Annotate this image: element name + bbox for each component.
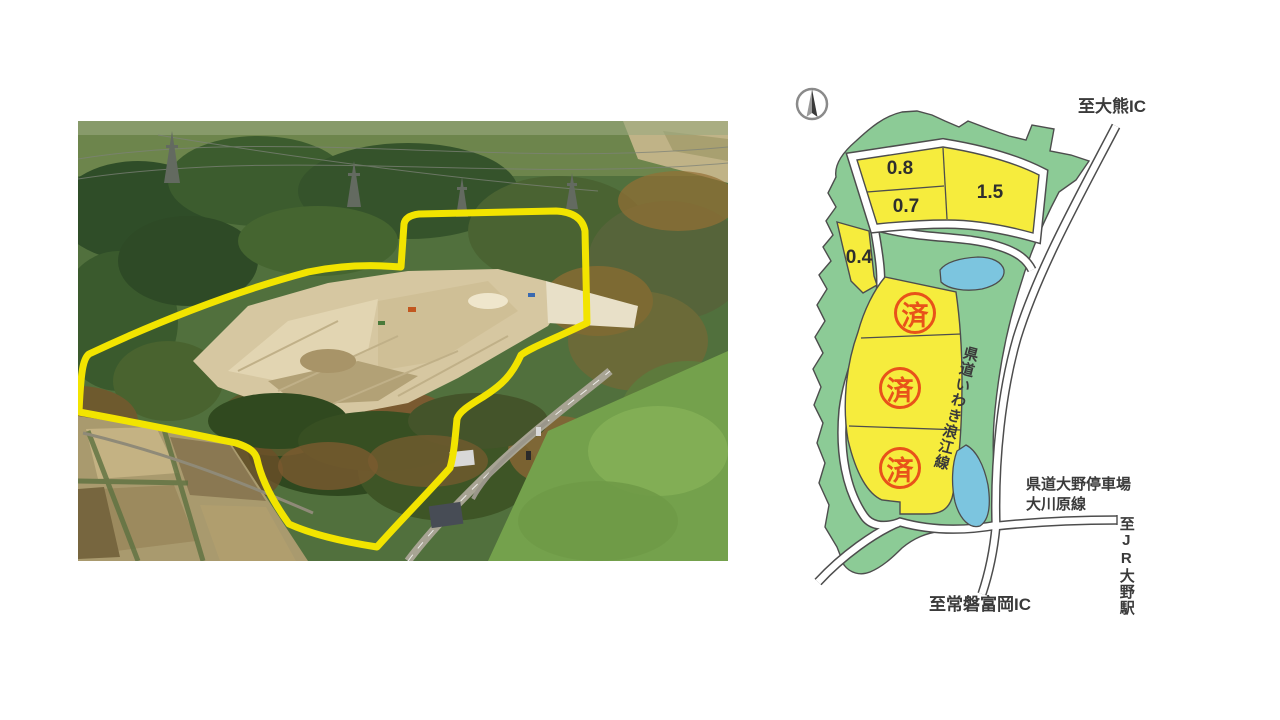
sold-mark-3: 済	[879, 447, 921, 489]
plot-label-08: 0.8	[874, 158, 926, 180]
sold-mark-2: 済	[879, 367, 921, 409]
label-to-tomioka-ic: 至常磐富岡IC	[910, 594, 1050, 615]
label-road-ono-line2: 大川原線	[1026, 496, 1086, 515]
haze	[78, 121, 728, 135]
site-map: 至大熊IC 県道いわき浪江線 県道大野停車場 大川原線 至JR大野駅 至常磐富岡…	[780, 70, 1180, 630]
plot-label-07: 0.7	[880, 196, 932, 218]
sold-mark-1: 済	[894, 292, 936, 334]
plot-label-04: 0.4	[833, 247, 885, 269]
label-road-ono-line1: 県道大野停車場	[1026, 476, 1131, 495]
north-indicator-icon	[797, 89, 827, 119]
page: 至大熊IC 県道いわき浪江線 県道大野停車場 大川原線 至JR大野駅 至常磐富岡…	[0, 0, 1280, 720]
label-to-okuma-ic: 至大熊IC	[1078, 96, 1146, 117]
label-to-jr-ono: 至JR大野駅	[1116, 516, 1135, 626]
aerial-photo-graphic	[78, 121, 728, 561]
plot-label-15: 1.5	[964, 182, 1016, 204]
meadow-shade	[518, 481, 678, 561]
aerial-photo	[78, 121, 728, 561]
